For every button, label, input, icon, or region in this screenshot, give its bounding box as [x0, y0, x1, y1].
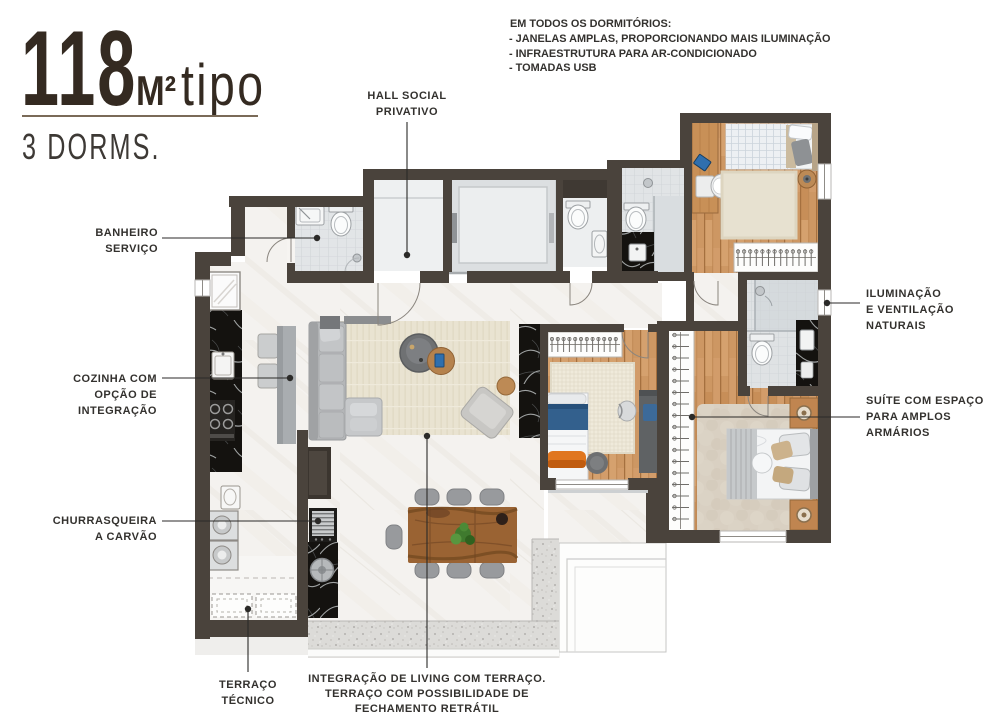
svg-text:3 DORMS.: 3 DORMS.	[22, 127, 161, 168]
svg-text:INTEGRAÇÃO DE LIVING COM TERRA: INTEGRAÇÃO DE LIVING COM TERRAÇO.	[308, 672, 546, 685]
svg-text:CHURRASQUEIRA: CHURRASQUEIRA	[53, 515, 157, 527]
svg-text:E VENTILAÇÃO: E VENTILAÇÃO	[866, 303, 954, 316]
svg-text:SERVIÇO: SERVIÇO	[105, 243, 158, 255]
svg-text:PARA AMPLOS: PARA AMPLOS	[866, 411, 951, 423]
svg-text:tipo: tipo	[181, 53, 265, 118]
svg-text:ARMÁRIOS: ARMÁRIOS	[866, 426, 930, 439]
svg-text:- JANELAS AMPLAS, PROPORCIONAN: - JANELAS AMPLAS, PROPORCIONANDO MAIS IL…	[509, 32, 831, 45]
svg-text:118: 118	[21, 10, 137, 129]
svg-text:A CARVÃO: A CARVÃO	[95, 530, 157, 543]
svg-text:- INFRAESTRUTURA PARA AR-CONDI: - INFRAESTRUTURA PARA AR-CONDICIONADO	[509, 48, 757, 60]
svg-text:FECHAMENTO RETRÁTIL: FECHAMENTO RETRÁTIL	[355, 702, 499, 715]
svg-text:- TOMADAS USB: - TOMADAS USB	[509, 62, 597, 74]
svg-text:M²: M²	[136, 68, 176, 115]
svg-text:SUÍTE COM ESPAÇO: SUÍTE COM ESPAÇO	[866, 394, 984, 407]
svg-text:BANHEIRO: BANHEIRO	[95, 227, 158, 239]
svg-text:EM TODOS OS DORMITÓRIOS:: EM TODOS OS DORMITÓRIOS:	[510, 17, 671, 30]
svg-text:TERRAÇO: TERRAÇO	[219, 679, 277, 691]
svg-text:NATURAIS: NATURAIS	[866, 320, 926, 332]
svg-text:HALL SOCIAL: HALL SOCIAL	[367, 90, 446, 102]
svg-text:TERRAÇO COM POSSIBILIDADE DE: TERRAÇO COM POSSIBILIDADE DE	[325, 688, 529, 700]
svg-text:OPÇÃO DE: OPÇÃO DE	[94, 388, 157, 401]
svg-text:COZINHA COM: COZINHA COM	[73, 373, 157, 385]
svg-text:TÉCNICO: TÉCNICO	[222, 694, 275, 707]
svg-text:PRIVATIVO: PRIVATIVO	[376, 106, 438, 118]
svg-text:ILUMINAÇÃO: ILUMINAÇÃO	[866, 287, 941, 300]
svg-text:INTEGRAÇÃO: INTEGRAÇÃO	[78, 404, 157, 417]
